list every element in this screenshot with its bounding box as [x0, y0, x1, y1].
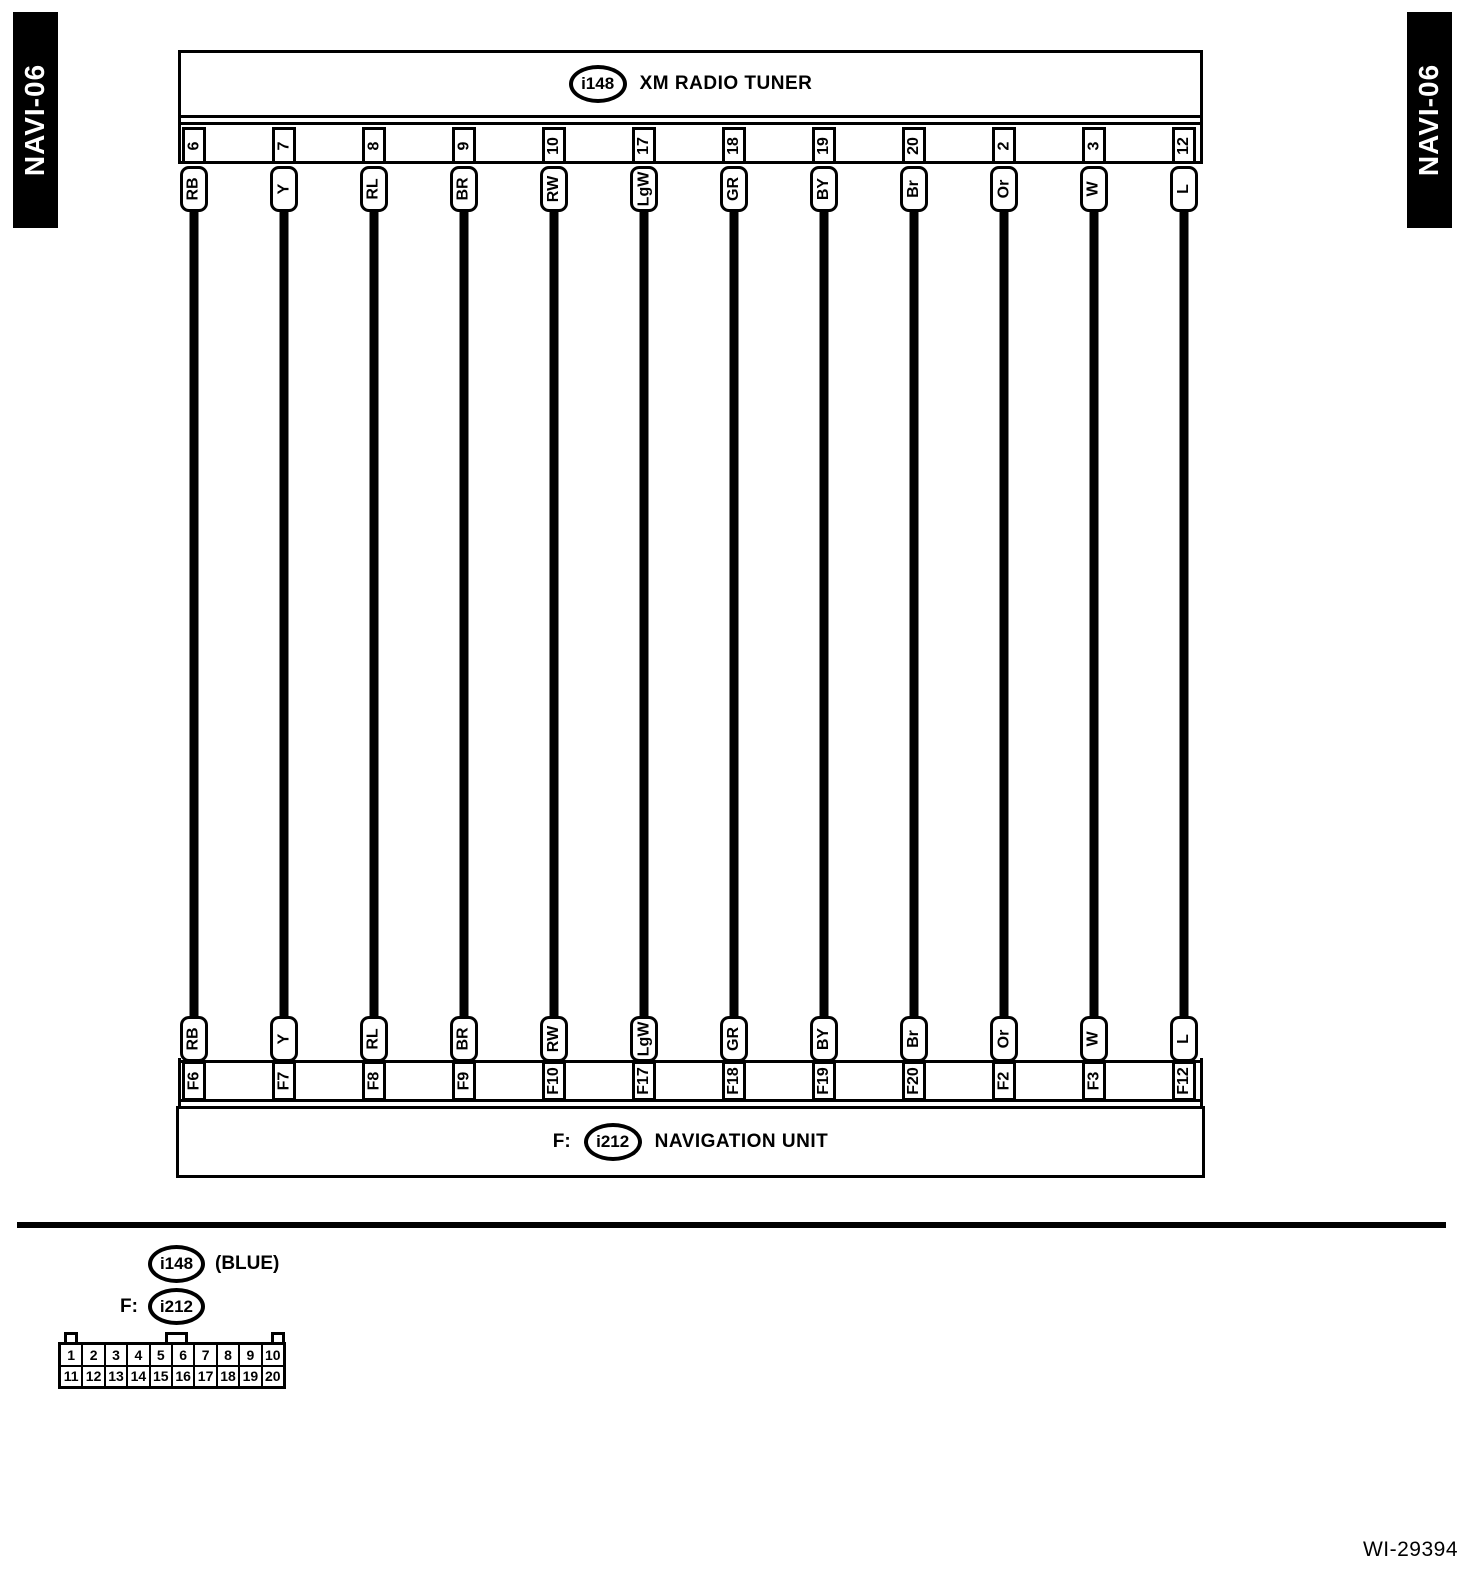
- wire-color-code: L: [1175, 1034, 1193, 1044]
- page-tab-right-label: NAVI-06: [1414, 64, 1446, 176]
- wire-color-code: Br: [905, 1030, 923, 1048]
- wire-column: 18 GR GR F18: [714, 122, 754, 1102]
- pin-grid-cell: 7: [195, 1345, 215, 1365]
- bottom-pin-box: F10: [542, 1061, 566, 1101]
- top-pin-box: 17: [632, 127, 656, 164]
- bottom-pin-number: F6: [185, 1072, 203, 1091]
- wire-color-label-top: BR: [450, 166, 478, 212]
- wire-column: 20 Br Br F20: [894, 122, 934, 1102]
- navigation-unit-box: F: i212 NAVIGATION UNIT: [176, 1106, 1205, 1178]
- wire-line: [460, 210, 469, 1020]
- wire-line: [730, 210, 739, 1020]
- wire-column: 9 BR BR F9: [444, 122, 484, 1102]
- top-pin-number: 17: [635, 137, 653, 155]
- top-pin-box: 18: [722, 127, 746, 164]
- pin-grid-cell: 13: [106, 1367, 126, 1387]
- bottom-pin-number: F18: [725, 1067, 743, 1095]
- pin-grid-cell: 4: [128, 1345, 148, 1365]
- bottom-pin-box: F3: [1082, 1061, 1106, 1101]
- pin-grid-cell: 15: [151, 1367, 171, 1387]
- bottom-pin-number: F10: [545, 1067, 563, 1095]
- wire-color-label-top: L: [1170, 166, 1198, 212]
- wire-color-code: RB: [185, 177, 203, 200]
- pin-grid-cell: 20: [263, 1367, 283, 1387]
- bottom-pin-number: F20: [905, 1067, 923, 1095]
- wire-color-label-bottom: L: [1170, 1016, 1198, 1062]
- connector-id-ellipse-i212: i212: [584, 1123, 642, 1161]
- wire-color-label-top: GR: [720, 166, 748, 212]
- top-pin-box: 6: [182, 127, 206, 164]
- wire-column: 19 BY BY F19: [804, 122, 844, 1102]
- bottom-pin-number: F17: [635, 1067, 653, 1095]
- wire-color-label-bottom: RB: [180, 1016, 208, 1062]
- wire-column: 6 RB RB F6: [174, 122, 214, 1102]
- top-pin-number: 6: [185, 141, 203, 150]
- xm-radio-tuner-label: XM RADIO TUNER: [640, 73, 813, 95]
- wire-color-label-bottom: LgW: [630, 1016, 658, 1062]
- legend-connector-i148: i148 (BLUE): [148, 1245, 279, 1283]
- wire-color-code: BR: [455, 1027, 473, 1050]
- wire-color-code: Or: [995, 180, 1013, 199]
- wiring-diagram-page: NAVI-06 NAVI-06 i148 XM RADIO TUNER F: i…: [0, 0, 1472, 1570]
- wire-color-code: RW: [545, 1026, 563, 1052]
- bottom-pin-box: F19: [812, 1061, 836, 1101]
- wire-color-label-top: Or: [990, 166, 1018, 212]
- wire-color-label-top: Br: [900, 166, 928, 212]
- pin-grid-cell: 10: [263, 1345, 283, 1365]
- wire-column: 3 W W F3: [1074, 122, 1114, 1102]
- pin-grid-cell: 5: [151, 1345, 171, 1365]
- top-pin-box: 9: [452, 127, 476, 164]
- top-connector-strip: [178, 122, 1203, 164]
- wire-color-label-top: BY: [810, 166, 838, 212]
- wire-color-code: W: [1085, 1031, 1103, 1046]
- wire-column: 17 LgW LgW F17: [624, 122, 664, 1102]
- legend-prefix-f: F:: [120, 1296, 138, 1318]
- bottom-pin-number: F8: [365, 1072, 383, 1091]
- wire-color-code: Y: [275, 1034, 293, 1045]
- wire-line: [370, 210, 379, 1020]
- bottom-pin-box: F8: [362, 1061, 386, 1101]
- top-pin-box: 7: [272, 127, 296, 164]
- page-tab-left-label: NAVI-06: [20, 64, 52, 176]
- wire-color-label-top: RL: [360, 166, 388, 212]
- top-pin-number: 7: [275, 141, 293, 150]
- wire-color-label-bottom: Y: [270, 1016, 298, 1062]
- wire-color-label-bottom: BR: [450, 1016, 478, 1062]
- wire-color-code: BY: [815, 178, 833, 200]
- pin-grid-cell: 12: [83, 1367, 103, 1387]
- wire-color-code: W: [1085, 181, 1103, 196]
- top-pin-number: 19: [815, 137, 833, 155]
- wire-color-code: GR: [725, 1027, 743, 1051]
- pin-grid-cell: 18: [218, 1367, 238, 1387]
- top-pin-box: 12: [1172, 127, 1196, 164]
- pin-grid-cell: 14: [128, 1367, 148, 1387]
- legend-ellipse-i212: i212: [148, 1288, 205, 1325]
- bottom-pin-number: F19: [815, 1067, 833, 1095]
- wire-line: [640, 210, 649, 1020]
- top-pin-box: 2: [992, 127, 1016, 164]
- pin-grid-cell: 2: [83, 1345, 103, 1365]
- wire-color-label-bottom: GR: [720, 1016, 748, 1062]
- bottom-pin-number: F2: [995, 1072, 1013, 1091]
- wire-color-code: Or: [995, 1030, 1013, 1049]
- bottom-pin-number: F7: [275, 1072, 293, 1091]
- section-divider-line: [17, 1222, 1446, 1228]
- bottom-connector-strip: [178, 1060, 1203, 1102]
- top-pin-number: 9: [455, 141, 473, 150]
- top-pin-box: 8: [362, 127, 386, 164]
- bottom-pin-box: F20: [902, 1061, 926, 1101]
- wire-column: 10 RW RW F10: [534, 122, 574, 1102]
- top-pin-number: 18: [725, 137, 743, 155]
- wire-color-code: BY: [815, 1028, 833, 1050]
- wire-line: [820, 210, 829, 1020]
- bottom-pin-number: F3: [1085, 1072, 1103, 1091]
- legend-color-note: (BLUE): [215, 1253, 279, 1275]
- bottom-pin-box: F12: [1172, 1061, 1196, 1101]
- bottom-pin-box: F6: [182, 1061, 206, 1101]
- wire-color-code: RW: [545, 176, 563, 202]
- connector-id-ellipse-i148: i148: [569, 65, 627, 103]
- pin-grid-cell: 11: [61, 1367, 81, 1387]
- wire-color-code: L: [1175, 184, 1193, 194]
- pin-grid-cell: 1: [61, 1345, 81, 1365]
- navigation-unit-label: NAVIGATION UNIT: [655, 1131, 829, 1153]
- page-tab-left: NAVI-06: [13, 12, 58, 228]
- connector-pin-grid: 1234567891011121314151617181920: [58, 1342, 286, 1389]
- wire-color-code: LgW: [635, 172, 653, 207]
- bottom-pin-box: F7: [272, 1061, 296, 1101]
- xm-radio-tuner-box: i148 XM RADIO TUNER: [178, 50, 1203, 118]
- bottom-pin-number: F12: [1175, 1067, 1193, 1095]
- top-pin-number: 8: [365, 141, 383, 150]
- top-pin-number: 20: [905, 137, 923, 155]
- wire-color-label-bottom: RW: [540, 1016, 568, 1062]
- legend-connector-i212: F: i212: [120, 1288, 205, 1325]
- pin-grid-cell: 8: [218, 1345, 238, 1365]
- wire-color-label-bottom: RL: [360, 1016, 388, 1062]
- wire-color-label-bottom: W: [1080, 1016, 1108, 1062]
- bottom-pin-box: F9: [452, 1061, 476, 1101]
- pin-grid-cell: 9: [240, 1345, 260, 1365]
- wire-color-label-bottom: Or: [990, 1016, 1018, 1062]
- page-tab-right: NAVI-06: [1407, 12, 1452, 228]
- pin-grid-cell: 19: [240, 1367, 260, 1387]
- wire-color-label-bottom: Br: [900, 1016, 928, 1062]
- wire-color-label-top: Y: [270, 166, 298, 212]
- wire-column: 7 Y Y F7: [264, 122, 304, 1102]
- top-pin-box: 20: [902, 127, 926, 164]
- wire-color-code: RB: [185, 1027, 203, 1050]
- wire-line: [1090, 210, 1099, 1020]
- wire-line: [190, 210, 199, 1020]
- document-reference: WI-29394: [1290, 1538, 1458, 1562]
- top-pin-box: 19: [812, 127, 836, 164]
- wire-color-code: LgW: [635, 1022, 653, 1057]
- wire-color-label-bottom: BY: [810, 1016, 838, 1062]
- pin-grid-cell: 17: [195, 1367, 215, 1387]
- top-pin-number: 10: [545, 137, 563, 155]
- wire-color-label-top: W: [1080, 166, 1108, 212]
- wire-line: [1000, 210, 1009, 1020]
- top-pin-box: 10: [542, 127, 566, 164]
- pin-grid-cell: 3: [106, 1345, 126, 1365]
- top-pin-number: 3: [1085, 141, 1103, 150]
- wire-column: 2 Or Or F2: [984, 122, 1024, 1102]
- pin-grid-cell: 16: [173, 1367, 193, 1387]
- wire-color-code: RL: [365, 1028, 383, 1049]
- top-pin-box: 3: [1082, 127, 1106, 164]
- wire-line: [1180, 210, 1189, 1020]
- wire-color-code: GR: [725, 177, 743, 201]
- bottom-pin-box: F18: [722, 1061, 746, 1101]
- wire-color-label-top: RB: [180, 166, 208, 212]
- bottom-pin-box: F2: [992, 1061, 1016, 1101]
- wire-color-code: Br: [905, 180, 923, 198]
- wire-color-code: RL: [365, 178, 383, 199]
- top-pin-number: 2: [995, 141, 1013, 150]
- wire-column: 8 RL RL F8: [354, 122, 394, 1102]
- wire-line: [910, 210, 919, 1020]
- top-pin-number: 12: [1175, 137, 1193, 155]
- wire-color-label-top: RW: [540, 166, 568, 212]
- wire-column: 12 L L F12: [1164, 122, 1204, 1102]
- wire-color-code: Y: [275, 184, 293, 195]
- wire-line: [280, 210, 289, 1020]
- wire-color-label-top: LgW: [630, 166, 658, 212]
- bottom-pin-box: F17: [632, 1061, 656, 1101]
- pin-grid-cell: 6: [173, 1345, 193, 1365]
- wire-color-code: BR: [455, 177, 473, 200]
- bottom-pin-number: F9: [455, 1072, 473, 1091]
- wire-line: [550, 210, 559, 1020]
- navigation-unit-prefix: F:: [553, 1131, 571, 1153]
- legend-ellipse-i148: i148: [148, 1245, 205, 1283]
